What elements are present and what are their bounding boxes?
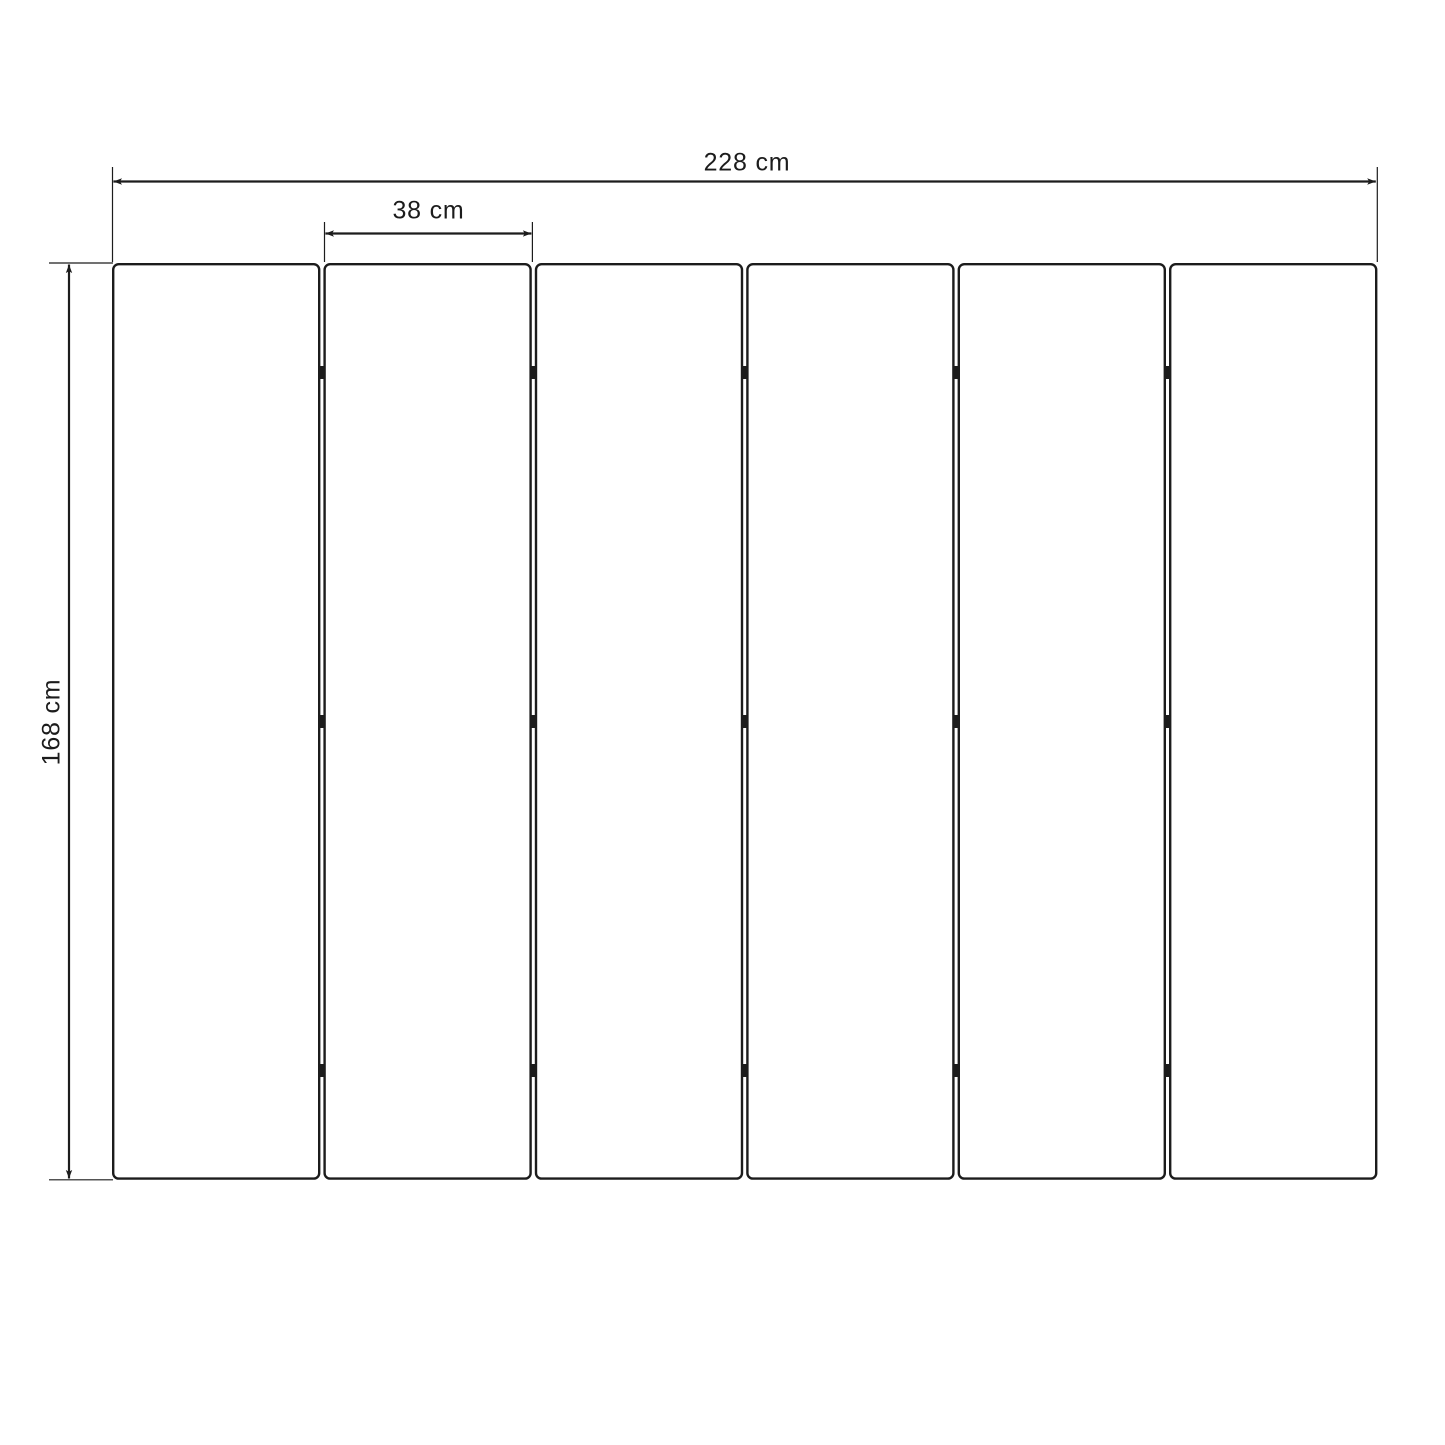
svg-text:228 cm: 228 cm — [704, 149, 791, 177]
svg-text:168 cm: 168 cm — [37, 679, 65, 766]
svg-text:38 cm: 38 cm — [392, 197, 464, 225]
